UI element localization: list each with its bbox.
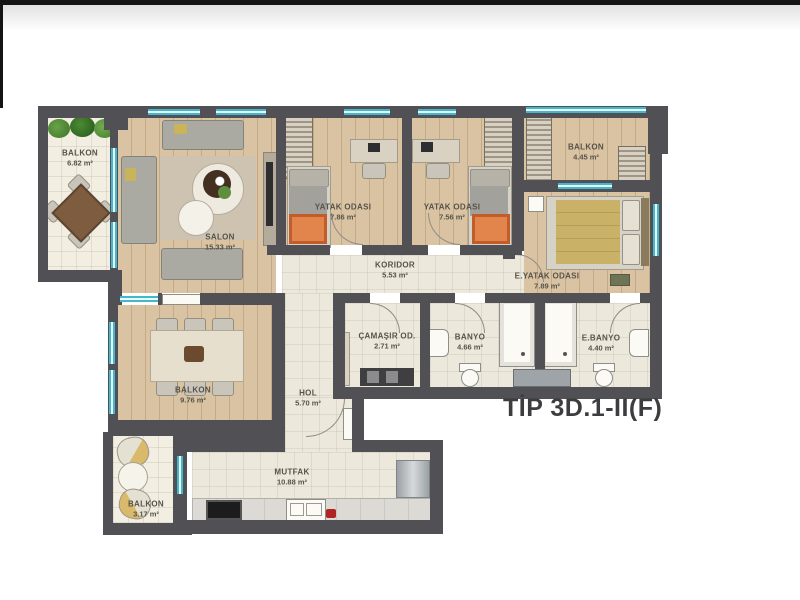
desk [412, 139, 460, 163]
room-area: 7.86 m² [315, 212, 372, 221]
bed-pillow [289, 169, 329, 187]
top-fade [0, 5, 800, 31]
room-name: YATAK ODASI [315, 202, 372, 212]
room-name: BALKON [128, 499, 164, 509]
room-name: BALKON [62, 148, 98, 158]
plan-title: TİP 3D.1-II(F) [503, 394, 662, 423]
shaft [513, 369, 571, 387]
wardrobe [618, 146, 646, 181]
room-label-balkon-tl: BALKON 6.82 m² [62, 148, 98, 167]
wall [276, 106, 286, 255]
wall [400, 293, 455, 303]
room-label-camasir: ÇAMAŞIR OD. 2.71 m² [358, 331, 415, 350]
room-area: 4.66 m² [455, 342, 485, 351]
left-black-strip [0, 0, 3, 108]
bed-blanket-yellow [556, 200, 620, 264]
room-area: 3.17 m² [128, 509, 164, 518]
sofa [161, 248, 243, 280]
room-name: HOL [295, 388, 321, 398]
window [418, 109, 456, 115]
wall [158, 293, 162, 305]
sink-basin [290, 503, 304, 516]
toilet-bowl [461, 369, 479, 387]
balcony-door-window [177, 456, 183, 494]
window [111, 222, 117, 268]
room-area: 4.45 m² [568, 152, 604, 161]
shower-tub [541, 299, 577, 367]
desk-chair [426, 163, 450, 179]
balcony-door-leaf [162, 294, 202, 305]
wall [103, 432, 113, 535]
washer-door [367, 371, 379, 383]
room-label-koridor: KORIDOR 5.53 m² [375, 260, 415, 279]
wall [430, 442, 443, 534]
window [109, 322, 115, 364]
stove-icon [206, 500, 242, 520]
wall [173, 434, 285, 452]
wall [38, 106, 48, 282]
kettle-icon [326, 509, 336, 518]
sink-basin [306, 503, 322, 516]
bed-pillow [622, 200, 640, 231]
monitor-icon [368, 143, 380, 152]
washer-door [386, 371, 398, 383]
room-label-balkon-tr: BALKON 4.45 m² [568, 142, 604, 161]
plant-small-icon [218, 186, 231, 199]
wall [640, 293, 662, 303]
room-label-yatak2: YATAK ODASI 7.56 m² [424, 202, 481, 221]
room-label-banyo: BANYO 4.66 m² [455, 332, 485, 351]
room-name: MUTFAK [274, 467, 309, 477]
bench [610, 274, 630, 286]
floor-plan: BALKON 6.82 m² SALON 15.33 m² YATAK ODAS… [0, 0, 800, 600]
room-label-mutfak: MUTFAK 10.88 m² [274, 467, 309, 486]
room-label-balkon-l: BALKON 9.76 m² [175, 385, 211, 404]
room-label-salon: SALON 15.33 m² [205, 232, 235, 251]
shower-tub [499, 299, 535, 367]
wall [402, 106, 412, 251]
wardrobe [526, 115, 552, 181]
room-area: 5.53 m² [375, 270, 415, 279]
toilet-bowl [595, 369, 613, 387]
wall [352, 440, 443, 452]
sofa-pillow [125, 168, 136, 181]
drain-dot [521, 352, 525, 356]
headboard [641, 198, 649, 266]
room-area: 7.89 m² [515, 281, 580, 290]
nightstand [528, 196, 544, 212]
window [344, 109, 390, 115]
room-name: YATAK ODASI [424, 202, 481, 212]
room-area: 5.70 m² [295, 398, 321, 407]
room-name: E.BANYO [582, 333, 621, 343]
window [148, 109, 200, 115]
bed-pillow [470, 169, 510, 187]
room-area: 6.82 m² [62, 158, 98, 167]
room-label-eyatak: E.YATAK ODASI 7.89 m² [515, 271, 580, 290]
wall [512, 106, 524, 251]
wall [200, 293, 285, 305]
chair [212, 380, 234, 396]
wall [267, 245, 330, 255]
room-label-yatak1: YATAK ODASI 7.86 m² [315, 202, 372, 221]
wall [485, 293, 610, 303]
window [216, 109, 266, 115]
plant-icon [70, 116, 95, 137]
wall [352, 397, 364, 452]
wall [103, 523, 192, 535]
wall [108, 293, 120, 305]
table-centerpiece [184, 346, 204, 362]
room-area: 4.40 m² [582, 343, 621, 352]
window [120, 296, 158, 302]
room-label-balkon-bl: BALKON 3.17 m² [128, 499, 164, 518]
room-area: 9.76 m² [175, 395, 211, 404]
sofa-pillow [174, 124, 187, 134]
desk-chair [362, 163, 386, 179]
wall [180, 520, 443, 534]
room-name: E.YATAK ODASI [515, 271, 580, 281]
room-name: ÇAMAŞIR OD. [358, 331, 415, 341]
wall [333, 293, 370, 303]
side-table [178, 200, 214, 236]
room-name: SALON [205, 232, 235, 242]
window [109, 370, 115, 414]
tv-icon [266, 162, 273, 226]
window [558, 183, 612, 189]
room-label-ebanyo: E.BANYO 4.40 m² [582, 333, 621, 352]
fridge-icon [396, 460, 430, 498]
passage [285, 293, 333, 397]
room-area: 2.71 m² [358, 341, 415, 350]
sink [629, 329, 649, 357]
room-area: 15.33 m² [205, 242, 235, 251]
room-area: 10.88 m² [274, 477, 309, 486]
wall [333, 303, 345, 397]
sink [429, 329, 449, 357]
laptop-icon [421, 142, 433, 152]
window [526, 107, 646, 113]
wall [503, 245, 515, 259]
room-label-hol: HOL 5.70 m² [295, 388, 321, 407]
bed-pillow [622, 234, 640, 265]
top-black-strip [0, 0, 800, 5]
window [653, 204, 659, 256]
wall [420, 303, 430, 397]
room-name: BALKON [175, 385, 211, 395]
room-name: BANYO [455, 332, 485, 342]
plant-icon [48, 119, 70, 138]
room-name: KORIDOR [375, 260, 415, 270]
wall [272, 305, 285, 432]
room-area: 7.56 m² [424, 212, 481, 221]
room-name: BALKON [568, 142, 604, 152]
drain-dot [563, 352, 567, 356]
window [111, 148, 117, 212]
wall [362, 245, 428, 255]
